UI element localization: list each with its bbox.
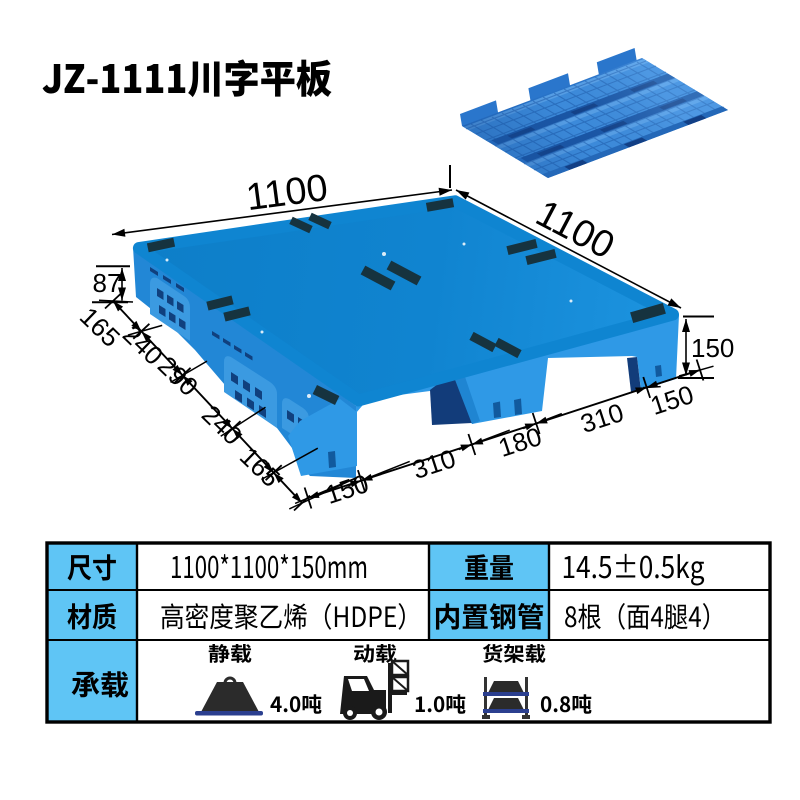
svg-text:87: 87 — [93, 268, 122, 298]
svg-text:150: 150 — [691, 333, 734, 363]
